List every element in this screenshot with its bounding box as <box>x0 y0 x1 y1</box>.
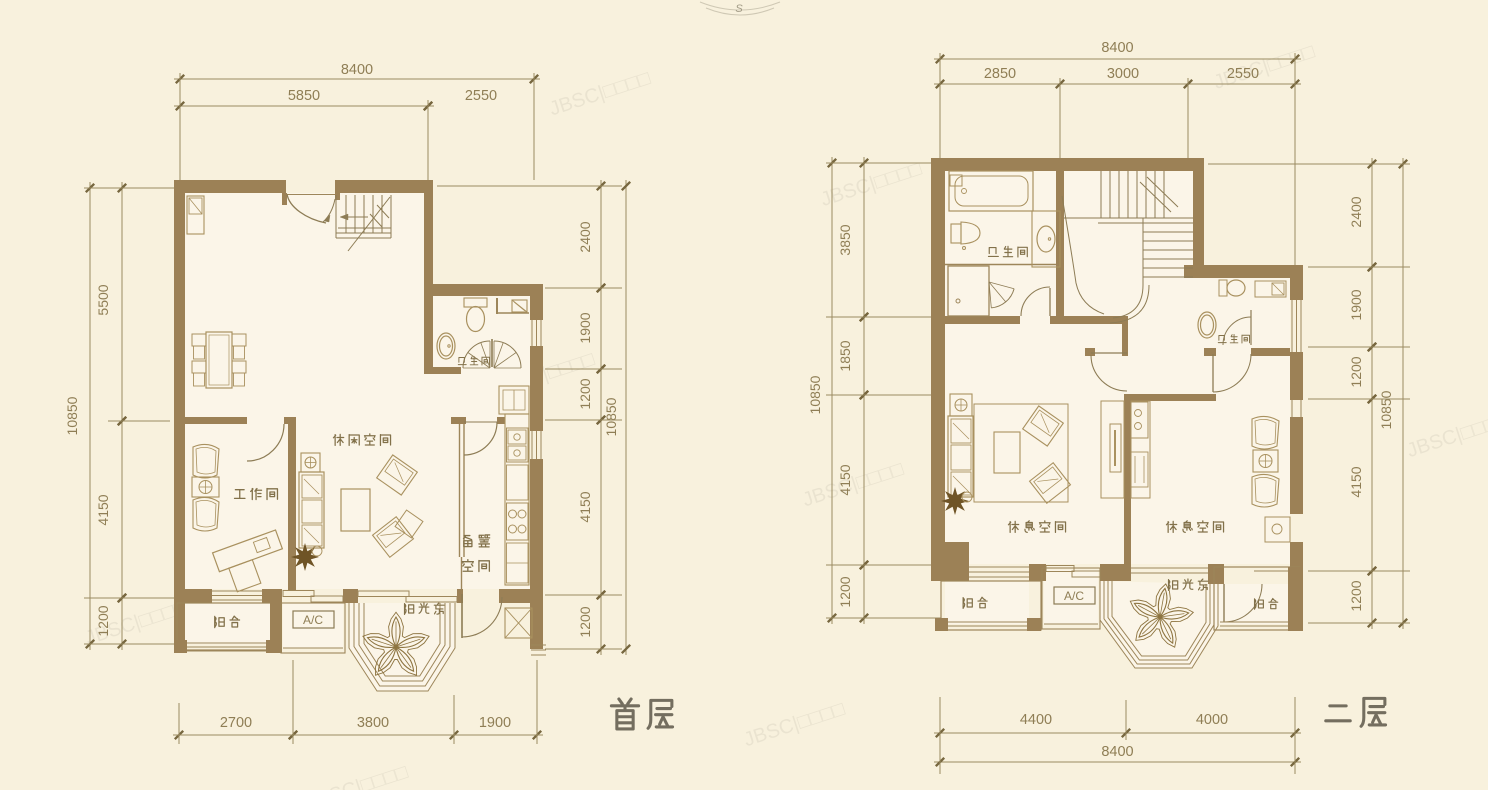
svg-text:4150: 4150 <box>95 494 111 525</box>
svg-text:10850: 10850 <box>1378 390 1394 429</box>
svg-text:10850: 10850 <box>64 396 80 435</box>
svg-text:1200: 1200 <box>837 576 853 607</box>
svg-text:1200: 1200 <box>1348 580 1364 611</box>
svg-text:A/C: A/C <box>303 613 323 627</box>
svg-text:2850: 2850 <box>984 66 1016 82</box>
svg-text:1200: 1200 <box>577 606 593 637</box>
svg-text:2550: 2550 <box>1227 66 1259 82</box>
svg-text:A/C: A/C <box>1064 589 1084 603</box>
svg-text:8400: 8400 <box>1101 40 1133 56</box>
svg-text:3800: 3800 <box>357 715 389 731</box>
svg-text:1850: 1850 <box>837 340 853 371</box>
svg-text:10850: 10850 <box>807 375 823 414</box>
svg-text:3000: 3000 <box>1107 66 1139 82</box>
svg-text:4150: 4150 <box>837 464 853 495</box>
svg-text:1900: 1900 <box>479 715 511 731</box>
svg-text:2400: 2400 <box>577 221 593 252</box>
svg-text:5500: 5500 <box>95 284 111 315</box>
svg-text:2700: 2700 <box>220 715 252 731</box>
svg-text:8400: 8400 <box>1101 744 1133 760</box>
svg-text:5850: 5850 <box>288 88 320 104</box>
svg-text:1200: 1200 <box>577 378 593 409</box>
svg-text:8400: 8400 <box>341 62 373 78</box>
svg-text:S: S <box>735 3 743 15</box>
svg-text:4150: 4150 <box>577 491 593 522</box>
svg-text:1200: 1200 <box>95 605 111 636</box>
svg-text:1200: 1200 <box>1348 356 1364 387</box>
svg-text:4400: 4400 <box>1020 712 1052 728</box>
svg-text:10850: 10850 <box>603 397 619 436</box>
svg-text:1900: 1900 <box>1348 289 1364 320</box>
svg-text:4150: 4150 <box>1348 466 1364 497</box>
svg-text:2400: 2400 <box>1348 196 1364 227</box>
svg-text:4000: 4000 <box>1196 712 1228 728</box>
svg-text:1900: 1900 <box>577 312 593 343</box>
svg-text:3850: 3850 <box>837 224 853 255</box>
svg-text:2550: 2550 <box>465 88 497 104</box>
